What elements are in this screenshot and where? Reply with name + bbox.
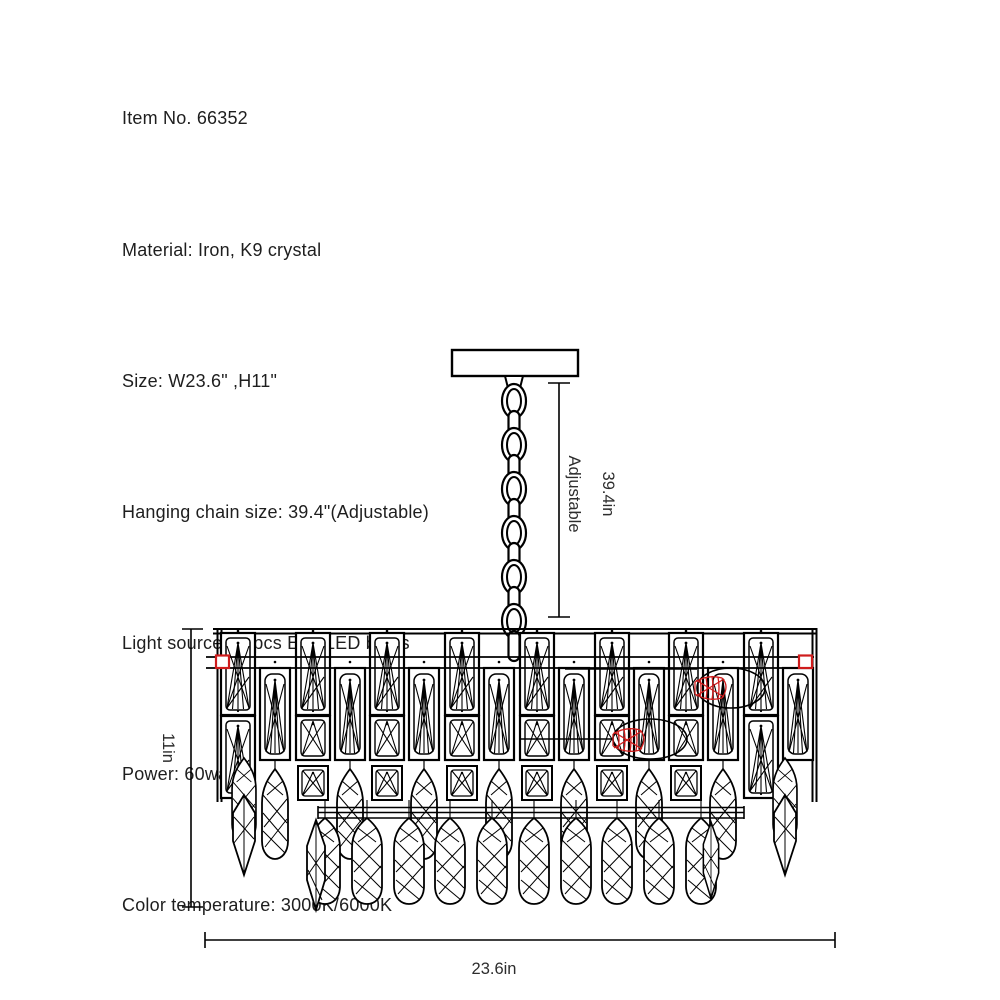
chandelier-body (206, 628, 817, 910)
width-dimension: 23.6in (205, 932, 835, 978)
width-label: 23.6in (472, 960, 517, 978)
rail-end-cap-left (216, 656, 229, 669)
chain-length-dimension: Adjustable 39.4in (548, 383, 617, 617)
height-dimension: 11in (159, 629, 203, 907)
chain-length-label: 39.4in (599, 472, 617, 517)
drop-crystals-front-row (310, 818, 716, 904)
height-label: 11in (159, 733, 177, 763)
product-spec-sheet: Item No. 66352 Material: Iron, K9 crysta… (0, 0, 1000, 1000)
adjustable-label: Adjustable (565, 455, 583, 532)
side-crystal-cluster-right (773, 758, 797, 875)
hanging-chain (502, 384, 526, 661)
frame-bottom-rails (318, 800, 744, 820)
rail-end-cap-right (799, 656, 812, 669)
side-crystal-cluster-left (232, 758, 256, 875)
chandelier-dimension-diagram: Adjustable 39.4in (0, 0, 1000, 1000)
